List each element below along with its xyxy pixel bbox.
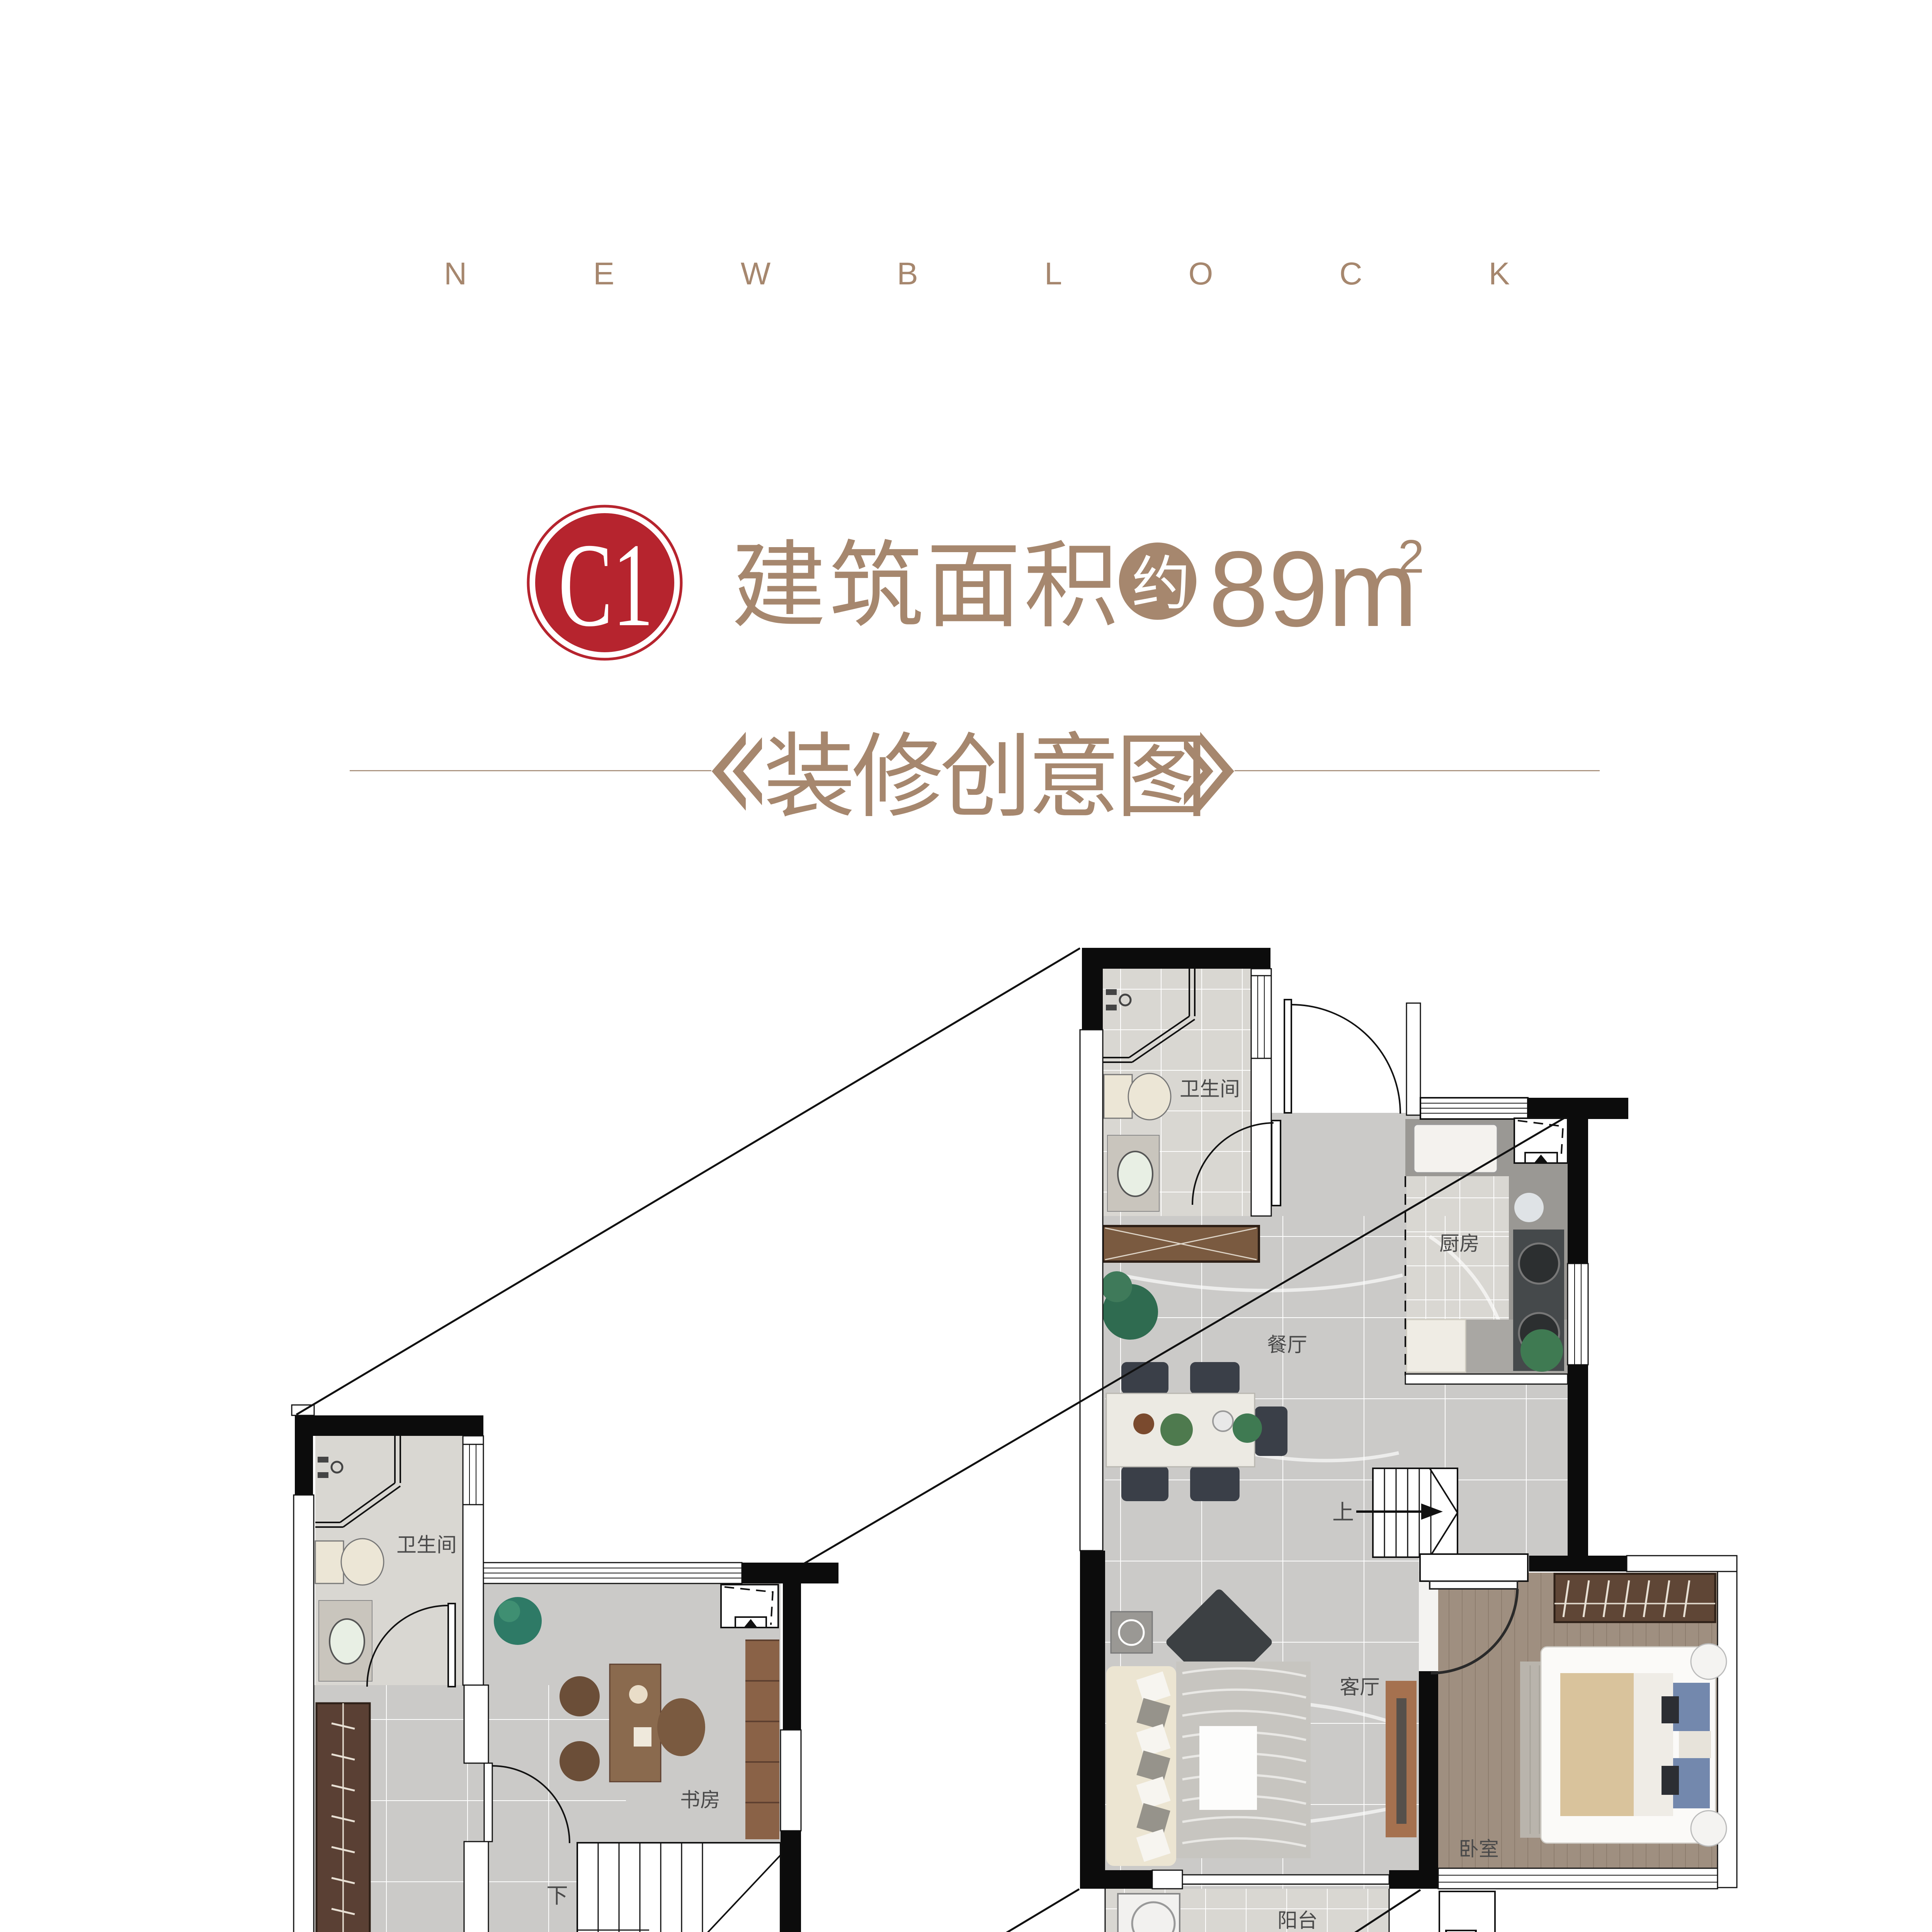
svg-text:89m: 89m bbox=[1209, 529, 1418, 649]
svg-text:2: 2 bbox=[1398, 530, 1424, 583]
svg-text:C1: C1 bbox=[558, 519, 653, 651]
svg-text:NEWBLOCK: NEWBLOCK bbox=[444, 256, 1636, 291]
